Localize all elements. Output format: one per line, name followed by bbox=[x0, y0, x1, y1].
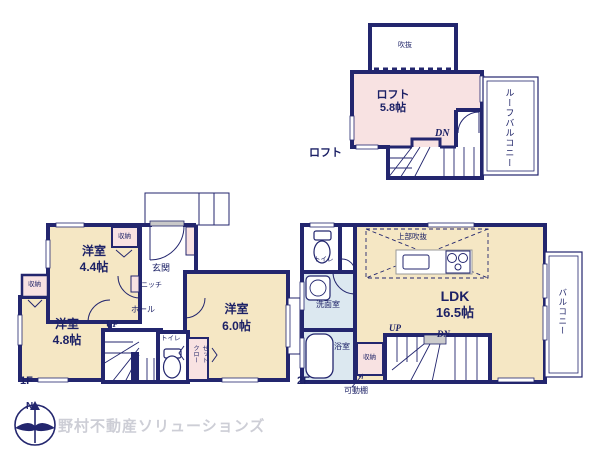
f1-floor-tag: 1F bbox=[20, 375, 33, 388]
f2-bathroom-label: 浴室 bbox=[334, 342, 350, 351]
f2-storage-label: 収納 bbox=[363, 354, 376, 361]
loft-void-label: 吹抜 bbox=[398, 42, 412, 50]
f1-up-label: UP bbox=[106, 319, 118, 329]
f1-toilet-label: トイレ bbox=[161, 335, 181, 342]
f1-room60-name: 洋室 bbox=[204, 303, 269, 317]
f2-up-label: UP bbox=[389, 323, 401, 333]
f2-ldk-name: LDK bbox=[415, 288, 495, 304]
f1-entrance-label: 玄関 bbox=[152, 263, 170, 273]
f1-room60-size: 6.0帖 bbox=[204, 320, 269, 334]
loft-floor-tag: ロフト bbox=[309, 147, 342, 160]
compass-n-letter: N bbox=[26, 401, 33, 412]
f2-dn-label: DN bbox=[437, 329, 450, 339]
f1-storage-b-label: 収納 bbox=[28, 281, 41, 288]
f2-ldk-size: 16.5帖 bbox=[415, 306, 495, 321]
f1-room44-name: 洋室 bbox=[64, 245, 124, 259]
floorplan-page: N 吹抜 ロフト 5.8帖 DN ロフト ルーフバルコニー 洋室 4.4帖 収納… bbox=[0, 0, 600, 450]
f1-closet-label: クローゼット bbox=[190, 345, 208, 367]
f2-movable-shelf-label: 可動棚 bbox=[344, 386, 368, 395]
f1-room44-size: 4.4帖 bbox=[64, 261, 124, 275]
loft-dn-label: DN bbox=[435, 128, 449, 140]
loft-room-size: 5.8帖 bbox=[363, 102, 423, 115]
company-logo-text: 野村不動産ソリューションズ bbox=[58, 418, 265, 435]
f2-toilet-label: トイレ bbox=[314, 256, 334, 263]
roof-balcony-label: ルーフバルコニー bbox=[504, 88, 514, 170]
f2-floor-tag: 2F bbox=[297, 375, 310, 388]
compass-north-icon: N bbox=[15, 401, 55, 445]
f1-storage-a-label: 収納 bbox=[118, 233, 131, 240]
f2-washroom-label: 洗面室 bbox=[316, 300, 340, 309]
loft-room-name: ロフト bbox=[363, 89, 423, 102]
f1-hall-label: ホール bbox=[131, 305, 155, 314]
f1-room48-size: 4.8帖 bbox=[37, 334, 97, 348]
f1-niche-label: ニッチ bbox=[141, 282, 162, 290]
f1-room48-name: 洋室 bbox=[37, 318, 97, 332]
f2-upper-void-label: 上部吹抜 bbox=[397, 233, 427, 242]
f2-balcony-label: バルコニー bbox=[557, 288, 567, 378]
